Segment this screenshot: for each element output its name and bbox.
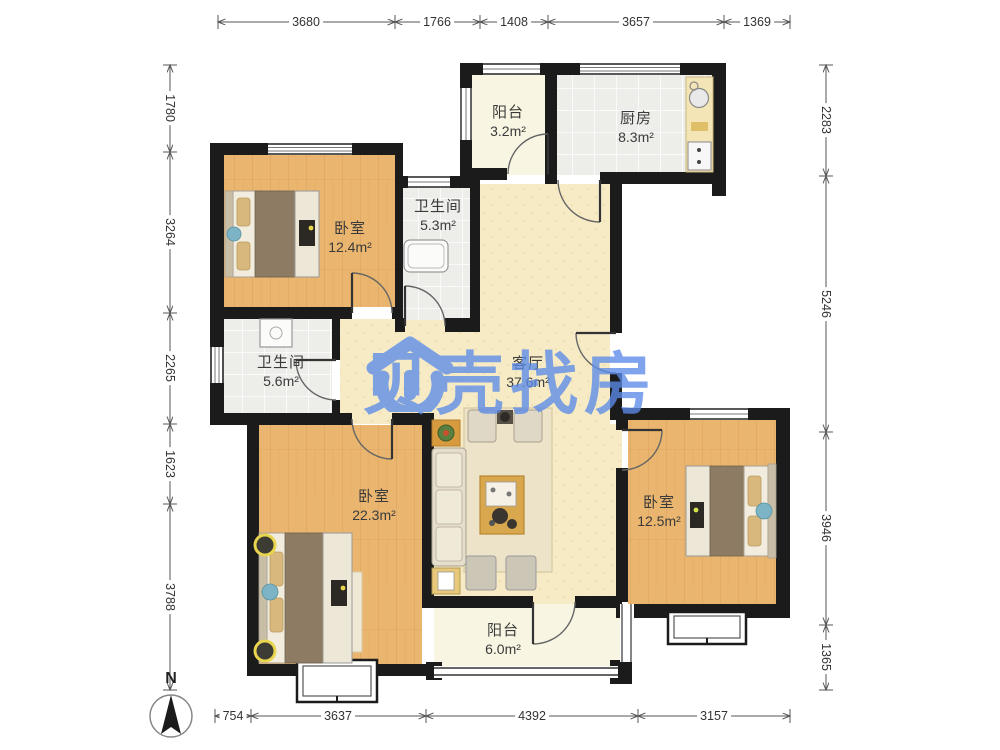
window-bedroom-tl-top xyxy=(268,143,352,155)
window-kitchen-top xyxy=(580,63,680,75)
floorplan-drawing xyxy=(0,0,1000,750)
bathtub-bath1 xyxy=(404,240,448,272)
window-balcony-bottom-right xyxy=(620,604,634,662)
window-balcony-bottom xyxy=(434,666,618,678)
window-balcony-top-left xyxy=(460,88,472,140)
north-arrow-icon xyxy=(150,695,192,737)
window-balcony-top xyxy=(483,63,540,75)
floorplan: 阳台 3.2m² 厨房 8.3m² 卧室 12.4m² 卫生间 5.3m² 卫生… xyxy=(0,0,1000,750)
washbasin-bath2 xyxy=(260,319,292,347)
kitchen-counter xyxy=(686,77,713,172)
bed-bedroom-r xyxy=(686,464,776,558)
bed-bedroom-bl xyxy=(255,533,362,663)
bay-window-bedroom-r xyxy=(668,612,746,644)
bed-bedroom-tl xyxy=(225,191,319,277)
window-bath2-left xyxy=(210,347,224,383)
window-bedroom-r-top xyxy=(690,408,748,420)
bay-window-bedroom-bl xyxy=(297,660,377,702)
window-bath1-top xyxy=(408,176,450,188)
living-room-furniture xyxy=(432,408,552,594)
